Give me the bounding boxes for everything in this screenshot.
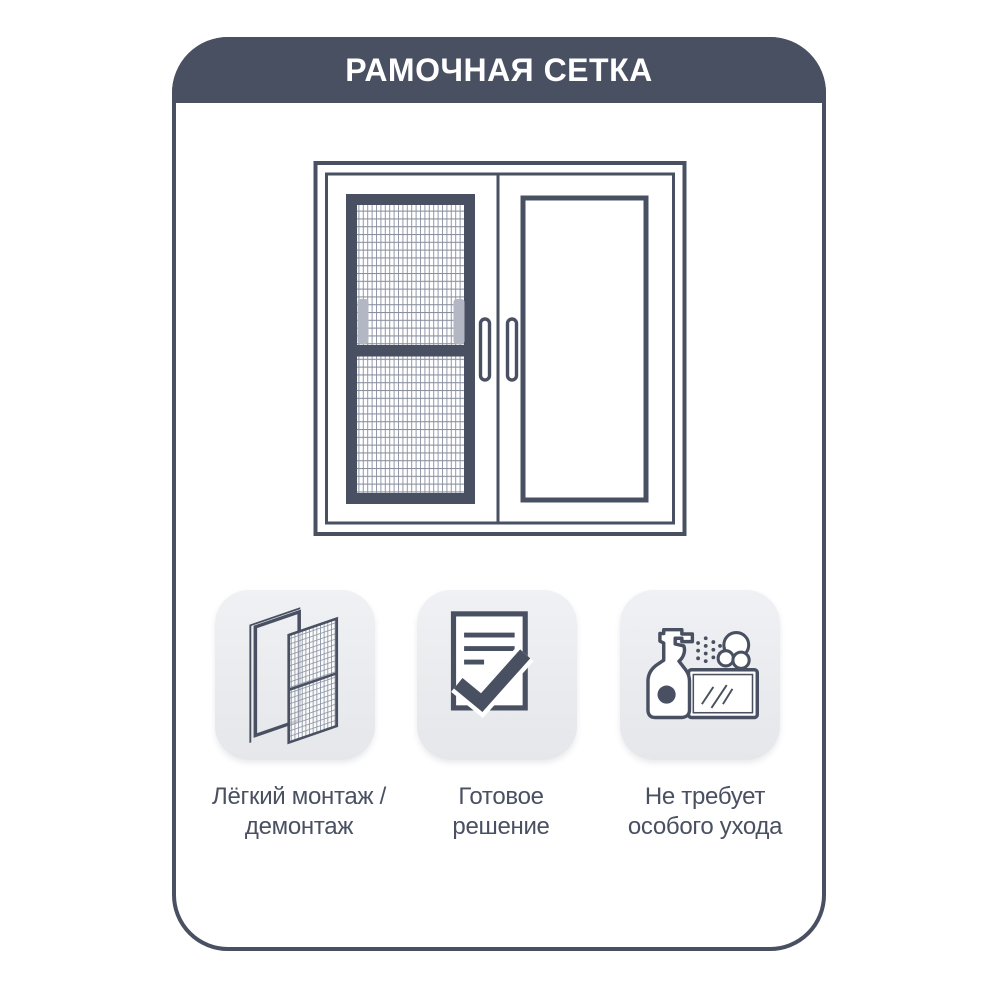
- checklist-icon: [438, 608, 556, 742]
- product-infographic: РАМОЧНАЯ СЕТКА: [0, 0, 1000, 1000]
- window-handle-left: [481, 319, 490, 380]
- card-header: РАМОЧНАЯ СЕТКА: [172, 37, 826, 103]
- spray-bottle: [648, 629, 692, 717]
- feature-label-line: Не требует: [575, 782, 835, 812]
- mesh-pull-tab-right: [454, 299, 465, 344]
- glass-pane: [523, 198, 646, 500]
- page-title: РАМОЧНАЯ СЕТКА: [345, 52, 652, 89]
- spray-bottle-icon: [637, 622, 763, 729]
- mesh-panel: [289, 619, 337, 743]
- spray-cloud: [718, 632, 749, 668]
- feature-tile: [417, 590, 577, 760]
- feature-tile: [215, 590, 375, 760]
- window-handle-right: [508, 319, 517, 380]
- glass-panel: [689, 669, 758, 717]
- feature-tile: [620, 590, 780, 760]
- mesh-frame-icon: [247, 604, 343, 746]
- mesh-pull-tab-left: [358, 299, 369, 344]
- window-illustration: [310, 156, 690, 540]
- mesh-middle-bar: [357, 345, 464, 357]
- bottle-label-dot: [658, 685, 676, 703]
- feature-label-line: особого ухода: [575, 812, 835, 842]
- feature-label: Не требует особого ухода: [575, 782, 835, 842]
